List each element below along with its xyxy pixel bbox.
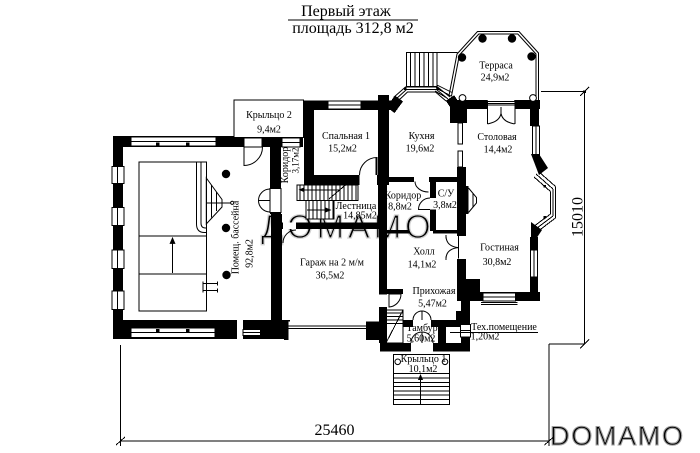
svg-text:15010: 15010	[570, 197, 587, 237]
svg-text:14,1м2: 14,1м2	[408, 260, 437, 271]
svg-text:3,8м2: 3,8м2	[433, 200, 457, 211]
svg-text:14,4м2: 14,4м2	[484, 145, 513, 156]
svg-text:Спальная 1: Спальная 1	[322, 131, 370, 142]
svg-text:19,6м2: 19,6м2	[406, 144, 435, 155]
svg-text:DOMAMO: DOMAMO	[550, 421, 685, 451]
svg-text:30,8м2: 30,8м2	[483, 257, 512, 268]
svg-text:92,8м2: 92,8м2	[245, 239, 256, 268]
svg-text:14,85м2: 14,85м2	[343, 211, 377, 222]
svg-text:8,8м2: 8,8м2	[388, 202, 412, 213]
svg-text:Коридор: Коридор	[385, 191, 422, 202]
svg-text:15,2м2: 15,2м2	[328, 144, 357, 155]
svg-text:Коридор: Коридор	[280, 147, 291, 184]
svg-text:1,20м2: 1,20м2	[471, 332, 500, 343]
svg-text:С/У: С/У	[438, 189, 455, 200]
svg-text:Прихожая: Прихожая	[413, 286, 456, 297]
svg-text:Столовая: Столовая	[477, 132, 517, 143]
svg-text:3,17м2: 3,17м2	[291, 148, 301, 174]
svg-text:Гостиная: Гостиная	[480, 243, 519, 254]
svg-text:24,9м2: 24,9м2	[481, 73, 510, 84]
svg-text:Помещ. бассейна: Помещ. бассейна	[231, 200, 242, 274]
svg-text:5,47м2: 5,47м2	[418, 299, 447, 310]
svg-text:Кухня: Кухня	[409, 131, 435, 142]
svg-text:Первый этаж: Первый этаж	[301, 3, 392, 20]
svg-text:Холл: Холл	[413, 247, 434, 258]
svg-text:Терраса: Терраса	[479, 61, 513, 72]
svg-text:Крыльцо 2: Крыльцо 2	[246, 110, 292, 121]
svg-text:36,5м2: 36,5м2	[316, 271, 345, 282]
svg-text:9,4м2: 9,4м2	[257, 125, 281, 136]
svg-text:25460: 25460	[315, 422, 355, 439]
svg-text:Гараж на 2 м/м: Гараж на 2 м/м	[300, 258, 365, 269]
svg-text:площадь 312,8 м2: площадь 312,8 м2	[292, 20, 414, 37]
